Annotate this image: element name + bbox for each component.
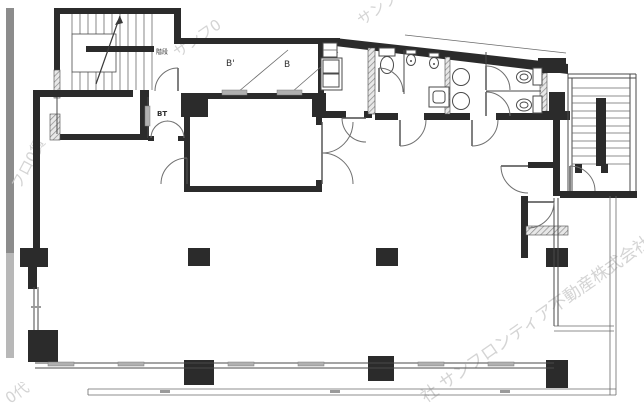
mop-sink-icon (429, 87, 449, 107)
balcony-edge-bottom (88, 389, 616, 395)
wall-segment (560, 191, 637, 198)
bt-vestibule: BT (145, 68, 187, 184)
double-door (151, 121, 184, 138)
pillar (184, 360, 214, 385)
pillar (188, 248, 210, 266)
door (501, 166, 528, 193)
urinal-icon (429, 53, 439, 69)
door (400, 120, 426, 146)
stair-stringer (596, 98, 606, 166)
urinal-icon (406, 50, 416, 66)
wall-segment (496, 113, 546, 120)
shaft-diagonal (238, 50, 288, 92)
door (486, 66, 510, 90)
pillar (20, 248, 48, 267)
left-window-band (31, 287, 41, 330)
staircase-left: 階段 (72, 14, 168, 90)
slant-window-gap (505, 53, 513, 54)
wall-segment (322, 111, 346, 118)
wall-segment (54, 8, 60, 70)
door (155, 68, 178, 91)
watermark-text: 0代 (2, 378, 32, 407)
wall-segment (54, 8, 181, 14)
closet-door (528, 202, 554, 228)
wall-segment (528, 162, 555, 168)
staircase-right (568, 74, 636, 191)
kitchenette (321, 43, 366, 142)
wall-segment (56, 134, 148, 140)
slant-window-gap (448, 47, 456, 48)
stair-newel (601, 164, 608, 173)
wall-segment (28, 267, 37, 289)
sink-icon (323, 74, 339, 87)
door (472, 120, 498, 146)
corner-block (28, 330, 58, 362)
tiled-wall (368, 48, 375, 114)
bt-label: BT (157, 110, 167, 118)
toilet-icon (517, 96, 543, 113)
wall-segment (174, 38, 340, 44)
pillar (546, 360, 568, 388)
wall-segment (316, 117, 322, 125)
pillar (546, 248, 568, 267)
wall-segment (184, 186, 322, 192)
sliding-window (277, 90, 302, 95)
slant-window-gap (388, 40, 396, 41)
wall-segment (375, 113, 398, 120)
floorplan-svg: フロ0賃 サンフ0 サンフロ 0代 社 サンフロンティア不動産株式会社 (0, 0, 644, 407)
toilet-icon (517, 68, 543, 85)
stair-void (72, 34, 116, 72)
wash-basin-icon (453, 93, 470, 110)
wall-segment (33, 90, 133, 97)
watermark-text: サンフロ (354, 0, 413, 29)
floorplan-image: フロ0賃 サンフ0 サンフロ 0代 社 サンフロンティア不動産株式会社 (0, 0, 644, 407)
door (486, 92, 510, 116)
wash-basin-icon (453, 69, 470, 86)
door-to-stairs (570, 166, 595, 191)
stair-handrail (86, 46, 154, 52)
vent-wall (50, 114, 60, 140)
meeting-room-doors (322, 122, 353, 184)
sink-icon (323, 60, 339, 73)
door (342, 118, 366, 142)
wall-segment (33, 90, 40, 250)
room-b-label: B (284, 60, 290, 70)
sliding-window (222, 90, 247, 95)
room-b-prime-label: B' (226, 59, 235, 69)
pillar (181, 93, 208, 117)
door (161, 158, 187, 184)
sliding-window (145, 106, 150, 126)
wall-segment (553, 120, 560, 196)
wall-segment (549, 92, 565, 113)
pillar (376, 248, 398, 266)
stairs-label: 階段 (156, 48, 168, 56)
